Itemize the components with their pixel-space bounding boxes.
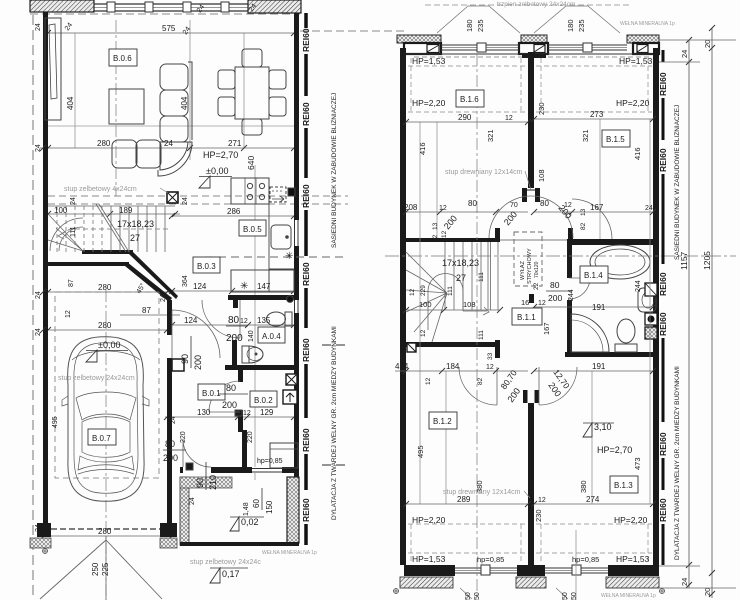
svg-text:111: 111	[70, 226, 77, 237]
svg-text:180: 180	[566, 19, 575, 32]
svg-text:20: 20	[703, 588, 712, 596]
svg-text:87: 87	[142, 306, 151, 315]
svg-text:WYŁAZ: WYŁAZ	[520, 260, 526, 280]
svg-text:404: 404	[180, 96, 189, 110]
svg-text:244: 244	[568, 289, 575, 301]
svg-text:12: 12	[505, 115, 513, 122]
svg-text:100: 100	[54, 206, 68, 215]
svg-text:stup drewniany 12x14cm: stup drewniany 12x14cm	[443, 489, 521, 496]
svg-text:124: 124	[184, 316, 198, 325]
svg-text:147: 147	[257, 282, 271, 291]
svg-text:80: 80	[540, 199, 549, 208]
svg-text:HP=2,20: HP=2,20	[614, 515, 648, 525]
svg-text:50: 50	[562, 592, 569, 600]
svg-text:87: 87	[68, 279, 75, 287]
svg-text:12: 12	[425, 377, 432, 385]
svg-text:230: 230	[537, 102, 546, 115]
svg-text:17x18,23: 17x18,23	[442, 258, 479, 268]
svg-text:290: 290	[458, 113, 472, 122]
svg-text:33: 33	[487, 352, 494, 360]
svg-text:1205: 1205	[702, 251, 712, 270]
svg-text:B.1.3: B.1.3	[614, 481, 633, 490]
svg-text:191: 191	[592, 303, 606, 312]
svg-text:A.0.4: A.0.4	[262, 332, 281, 341]
svg-text:24: 24	[680, 578, 689, 586]
svg-text:364: 364	[182, 275, 189, 287]
svg-text:273: 273	[590, 110, 604, 119]
svg-text:REI60: REI60	[301, 28, 311, 52]
svg-text:80: 80	[226, 383, 236, 393]
svg-text:640: 640	[246, 156, 256, 170]
svg-text:HP=1,53: HP=1,53	[619, 56, 653, 66]
svg-text:12: 12	[243, 410, 251, 417]
svg-text:111: 111	[478, 330, 485, 340]
svg-text:✳: ✳	[285, 251, 293, 262]
svg-text:REI60: REI60	[301, 262, 311, 286]
svg-text:129: 129	[260, 408, 274, 417]
svg-text:B.1.6: B.1.6	[460, 95, 479, 104]
svg-text:B.1.5: B.1.5	[606, 135, 625, 144]
svg-text:235: 235	[577, 19, 586, 32]
svg-text:321: 321	[486, 129, 495, 142]
svg-text:1157: 1157	[679, 251, 689, 270]
svg-text:HP=2,70: HP=2,70	[203, 150, 238, 160]
svg-text:24: 24	[609, 568, 616, 576]
svg-text:473: 473	[633, 457, 642, 470]
svg-text:108: 108	[463, 300, 476, 309]
svg-text:380: 380	[579, 480, 588, 493]
svg-text:108: 108	[537, 169, 546, 182]
svg-text:HP=2,20: HP=2,20	[412, 515, 446, 525]
svg-text:B.1.4: B.1.4	[584, 271, 603, 280]
svg-text:HP=1,53: HP=1,53	[616, 554, 650, 564]
svg-text:27: 27	[130, 233, 140, 243]
svg-text:200: 200	[548, 293, 562, 303]
svg-text:24: 24	[35, 23, 42, 31]
svg-text:12: 12	[441, 230, 448, 238]
svg-text:REI60: REI60	[658, 148, 668, 172]
svg-text:REI60: REI60	[301, 428, 311, 452]
svg-text:82: 82	[580, 222, 587, 230]
svg-text:200: 200	[222, 400, 237, 410]
svg-text:495: 495	[416, 445, 425, 458]
svg-text:22: 22	[533, 282, 540, 290]
svg-text:trzpien zelbetowy 24x24cm: trzpien zelbetowy 24x24cm	[497, 1, 575, 8]
svg-text:24: 24	[645, 205, 653, 212]
svg-text:244: 244	[635, 280, 642, 292]
svg-text:WEŁNA MINERALNA 1p: WEŁNA MINERALNA 1p	[262, 550, 317, 556]
svg-text:24: 24	[519, 568, 526, 576]
svg-text:SASIEDNI BUDYNEK W ZABUDOWI: SASIEDNI BUDYNEK W ZABUDOWIE BLIZNIACZEJ	[674, 105, 681, 260]
svg-text:REI60: REI60	[658, 272, 668, 296]
svg-text:60: 60	[252, 499, 261, 508]
svg-text:B.0.2: B.0.2	[254, 396, 273, 405]
svg-text:124: 124	[193, 282, 207, 291]
svg-text:167: 167	[590, 203, 604, 212]
svg-text:286: 286	[227, 207, 241, 216]
svg-text:STRYCHOWY: STRYCHOWY	[527, 248, 533, 284]
svg-text:416: 416	[633, 147, 642, 160]
svg-text:82: 82	[477, 377, 484, 385]
svg-text:416: 416	[418, 142, 427, 155]
svg-text:80: 80	[468, 199, 477, 208]
svg-text:16: 16	[521, 298, 529, 307]
svg-text:229: 229	[420, 285, 427, 296]
svg-text:404: 404	[66, 96, 75, 110]
svg-text:167: 167	[542, 322, 551, 335]
svg-text:1,48: 1,48	[243, 502, 250, 516]
svg-text:hp=0,85: hp=0,85	[257, 458, 283, 465]
svg-text:274: 274	[586, 495, 600, 504]
svg-text:±0,00: ±0,00	[98, 340, 120, 350]
svg-text:24: 24	[189, 497, 196, 505]
svg-text:0,17: 0,17	[222, 569, 240, 579]
svg-text:111: 111	[478, 272, 485, 282]
svg-text:REI60: REI60	[658, 432, 668, 456]
svg-text:82: 82	[432, 234, 439, 242]
svg-text:80: 80	[165, 439, 175, 449]
svg-text:200: 200	[226, 333, 243, 344]
svg-text:WEŁNA MINERALNA 1p: WEŁNA MINERALNA 1p	[620, 21, 675, 27]
svg-text:HP=2,20: HP=2,20	[412, 98, 446, 108]
svg-text:HP=2,70: HP=2,70	[597, 445, 632, 455]
svg-text:140: 140	[248, 330, 255, 342]
svg-text:80: 80	[228, 315, 240, 326]
svg-text:24: 24	[170, 416, 177, 424]
svg-text:271: 271	[228, 139, 242, 148]
svg-text:230: 230	[534, 509, 543, 522]
svg-text:SASIEDNI BUDYNEK W ZABUDOWI: SASIEDNI BUDYNEK W ZABUDOWIE BLIZNIACZEJ	[331, 93, 338, 248]
svg-text:stup zelbetowy 24x24c: stup zelbetowy 24x24c	[190, 559, 261, 566]
svg-text:130: 130	[197, 408, 211, 417]
svg-text:±0,00: ±0,00	[206, 166, 228, 176]
svg-text:0,02: 0,02	[241, 517, 259, 527]
svg-text:235: 235	[476, 19, 485, 32]
svg-text:24: 24	[182, 197, 189, 205]
svg-text:184: 184	[446, 362, 460, 371]
svg-text:REI60: REI60	[658, 498, 668, 522]
svg-text:REI60: REI60	[658, 72, 668, 96]
svg-text:180: 180	[465, 19, 474, 32]
svg-text:stup zelbetowy 24x24cm: stup zelbetowy 24x24cm	[58, 375, 135, 382]
svg-text:27: 27	[456, 273, 466, 283]
svg-text:220: 220	[247, 431, 254, 443]
svg-text:280: 280	[98, 283, 112, 292]
svg-text:495: 495	[52, 416, 59, 428]
svg-text:321: 321	[581, 129, 590, 142]
svg-text:80: 80	[550, 280, 560, 290]
svg-text:HP=1,53: HP=1,53	[412, 56, 446, 66]
svg-text:12: 12	[538, 300, 546, 307]
svg-text:575: 575	[162, 24, 176, 33]
svg-text:12: 12	[65, 310, 72, 318]
svg-text:HP=1,53: HP=1,53	[412, 554, 446, 564]
svg-text:150: 150	[265, 500, 274, 514]
svg-text:70: 70	[510, 202, 518, 209]
svg-text:20: 20	[703, 40, 712, 48]
svg-text:B.1.2: B.1.2	[433, 417, 452, 426]
svg-text:100: 100	[419, 300, 432, 309]
svg-text:12: 12	[420, 329, 427, 337]
svg-text:B.0.5: B.0.5	[243, 225, 262, 234]
svg-text:REI60: REI60	[301, 184, 311, 208]
svg-text:REI60: REI60	[301, 338, 311, 362]
svg-text:208: 208	[404, 203, 418, 212]
svg-text:90: 90	[195, 478, 205, 488]
svg-text:24: 24	[35, 144, 42, 152]
svg-text:90: 90	[180, 354, 190, 364]
svg-text:13: 13	[432, 222, 439, 230]
svg-text:210: 210	[208, 475, 218, 490]
svg-text:50: 50	[474, 592, 481, 600]
svg-text:B.1.1: B.1.1	[517, 313, 536, 322]
svg-text:220: 220	[180, 431, 187, 443]
svg-text:250: 250	[91, 562, 100, 576]
svg-text:HP=2,20: HP=2,20	[616, 98, 650, 108]
svg-text:24: 24	[164, 139, 173, 148]
svg-text:200: 200	[193, 355, 203, 370]
svg-text:225: 225	[101, 562, 110, 576]
svg-text:70x120: 70x120	[534, 261, 540, 278]
svg-text:24: 24	[35, 524, 42, 532]
svg-text:12: 12	[439, 205, 447, 212]
svg-text:hp=0,85: hp=0,85	[572, 555, 599, 564]
svg-text:17x18,23: 17x18,23	[117, 219, 154, 229]
svg-text:REI60: REI60	[301, 498, 311, 522]
svg-text:24: 24	[160, 294, 167, 302]
svg-text:50: 50	[465, 592, 472, 600]
svg-text:REI60: REI60	[658, 312, 668, 336]
svg-text:12: 12	[240, 318, 248, 325]
svg-text:280: 280	[97, 139, 111, 148]
svg-text:stup drewniany 12x14cm: stup drewniany 12x14cm	[445, 169, 523, 176]
svg-text:280: 280	[98, 527, 112, 536]
svg-text:111: 111	[447, 286, 454, 296]
svg-text:135: 135	[257, 316, 271, 325]
svg-text:280: 280	[98, 321, 112, 330]
svg-text:12: 12	[538, 497, 546, 504]
svg-text:24: 24	[680, 50, 689, 58]
svg-text:189: 189	[119, 206, 133, 215]
svg-text:424: 424	[395, 362, 409, 371]
svg-text:50: 50	[571, 592, 578, 600]
svg-text:DYLATACJA Z TWARDEJ WELNY: DYLATACJA Z TWARDEJ WELNY GR. 2cm MIEDZY…	[674, 366, 681, 560]
svg-text:12: 12	[409, 288, 416, 296]
svg-text:B.0.7: B.0.7	[92, 434, 111, 443]
svg-text:191: 191	[592, 362, 606, 371]
svg-text:289: 289	[457, 495, 471, 504]
svg-text:24: 24	[35, 291, 42, 299]
svg-text:stup zelbetowy 4x24cm: stup zelbetowy 4x24cm	[64, 186, 137, 193]
svg-text:B.0.6: B.0.6	[113, 54, 132, 63]
svg-text:✳: ✳	[240, 281, 248, 292]
svg-text:B.0.1: B.0.1	[202, 389, 221, 398]
svg-text:REI60: REI60	[301, 102, 311, 126]
svg-text:12: 12	[486, 364, 494, 371]
svg-text:200: 200	[163, 453, 178, 463]
svg-text:DYLATACJA Z TWARDEJ WELNY: DYLATACJA Z TWARDEJ WELNY GR. 2cm MIEDZY…	[331, 326, 338, 520]
svg-text:WEŁNA MINERALNA 1p: WEŁNA MINERALNA 1p	[601, 593, 656, 599]
svg-text:24: 24	[408, 568, 415, 576]
svg-text:3,10: 3,10	[594, 422, 612, 432]
svg-text:hp=0,85: hp=0,85	[477, 555, 504, 564]
svg-text:24: 24	[70, 197, 77, 205]
svg-text:B.0.3: B.0.3	[197, 262, 216, 271]
svg-text:13: 13	[580, 208, 587, 216]
